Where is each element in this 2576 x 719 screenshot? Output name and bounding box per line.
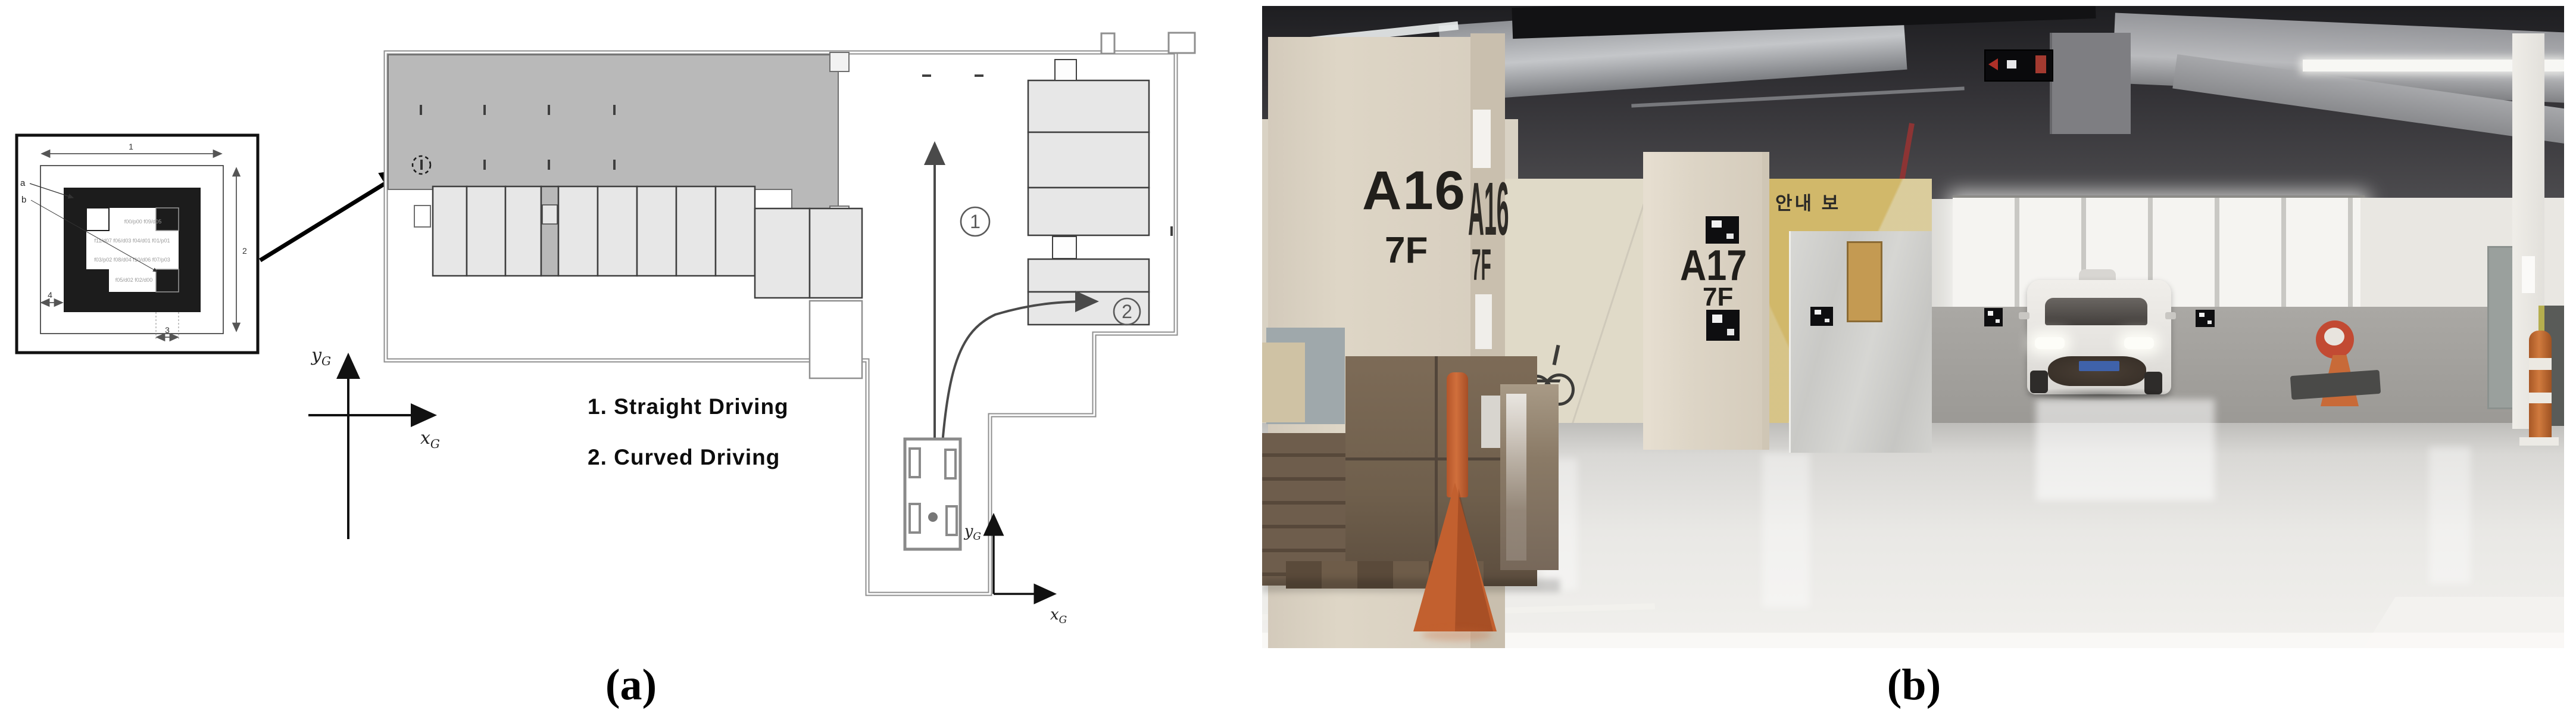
- led-white-dot: [2007, 60, 2016, 69]
- tick: [1170, 226, 1173, 236]
- tick: [922, 74, 931, 77]
- stall: [558, 186, 598, 276]
- bollard-orange: [2529, 331, 2552, 443]
- plan-vehicle: [905, 439, 960, 549]
- global-y-label: yG: [310, 345, 331, 368]
- stall: [755, 208, 810, 298]
- marker-code-row4: f05/d02 f02/d00: [115, 277, 153, 283]
- marker-corner-cell-bl: [86, 269, 109, 292]
- stall: [637, 186, 676, 276]
- fiducial-marker-diagram: f00/p00 f09/d05 f11/d07 f06/d03 f04/d01 …: [17, 135, 258, 353]
- vehicle-y-letter: y: [964, 522, 973, 540]
- global-axes: yG xG: [308, 345, 440, 539]
- marker-code-row1: f00/p00 f09/d05: [124, 219, 162, 225]
- stall: [716, 186, 755, 276]
- global-y-sub: G: [321, 354, 331, 368]
- floor-reflection-3: [2429, 447, 2471, 584]
- car-headlight-right: [2124, 337, 2154, 349]
- round-sign-disc: [2316, 320, 2354, 359]
- car-windshield: [2045, 298, 2147, 325]
- plan-left-tab: [414, 206, 430, 227]
- vehicle-y-sub: G: [973, 531, 981, 543]
- tick: [613, 105, 616, 115]
- fallen-cone-group: [2291, 316, 2386, 411]
- path1-badge-number: 1: [970, 211, 981, 232]
- dim-label-1: 1: [129, 142, 133, 151]
- stall: [1028, 259, 1149, 292]
- stall: [598, 186, 637, 276]
- stall: [1028, 132, 1149, 188]
- pillar-a16-side-paper: [1473, 110, 1491, 168]
- stall-pillar-square: [542, 205, 557, 224]
- car-shadow: [2022, 387, 2177, 401]
- pillar-a16-side-id-text: A16: [1468, 172, 1509, 247]
- vehicle-wheel-fr: [945, 450, 956, 478]
- global-y-letter: y: [310, 345, 322, 366]
- wall-seam-line: [1566, 185, 1651, 442]
- floor-reflection-2: [1762, 453, 1810, 608]
- duct-panel-gray: [2050, 33, 2131, 134]
- pillar-a17: A17 7F: [1643, 152, 1762, 450]
- floor-reflection-car: [2036, 399, 2215, 500]
- pillar-a16-floor-text: 7F: [1385, 232, 1428, 269]
- sign-disc-center: [2324, 328, 2344, 346]
- marker-corner-cell-tl: [86, 208, 109, 231]
- vehicle-wheel-fl: [910, 449, 920, 477]
- bollard-reflective-band2: [2529, 393, 2552, 403]
- stall: [810, 208, 862, 298]
- box-beige: [1262, 343, 1305, 422]
- stall: [1028, 188, 1149, 235]
- pillar-a17-marker-top: [1706, 216, 1739, 244]
- fiducial-marker-wall-right: [2196, 310, 2215, 327]
- box-stack-wrapped: [1500, 384, 1559, 570]
- led-parking-sign: [1984, 49, 2053, 82]
- global-x-letter: x: [420, 428, 430, 449]
- garage-photo: 안내 보 A16 7F A16 7F: [1262, 6, 2564, 648]
- stall-pillar-strip: [541, 186, 558, 276]
- car-headlight-left: [2035, 337, 2065, 349]
- dark-equipment: [2290, 370, 2381, 400]
- stall-pillar-square: [1053, 236, 1076, 259]
- korean-wall-sign: 안내 보: [1775, 194, 1841, 213]
- wrap-shine: [1506, 394, 1526, 561]
- car: [2027, 268, 2173, 411]
- tick: [548, 160, 550, 170]
- stall: [433, 186, 467, 276]
- tick: [613, 160, 616, 170]
- tick: [548, 105, 550, 115]
- pillar-a16-side-floor-text: 7F: [1472, 243, 1491, 287]
- floor-plan: 1 2 yG xG 1. Straight Driving 2. C: [386, 33, 1195, 626]
- stall-pillar-square: [1055, 60, 1076, 80]
- vehicle-center-dot: [928, 512, 938, 522]
- vehicle-x-label: xG: [1050, 606, 1067, 626]
- led-red-glyph: [2035, 55, 2046, 73]
- pillar-a17-floor-text: 7F: [1703, 284, 1733, 310]
- legend-curved: 2. Curved Driving: [588, 445, 780, 469]
- traffic-cone-large: [1411, 372, 1500, 634]
- bollard-base-mat: [2519, 437, 2559, 446]
- tick: [483, 105, 486, 115]
- dim-label-2: 2: [242, 246, 247, 256]
- panel-a-diagram: f00/p00 f09/d05 f11/d07 f06/d03 f04/d01 …: [0, 0, 1262, 719]
- plan-pillar-tab-top: [830, 52, 849, 71]
- marker-location-arrow: [260, 173, 402, 260]
- fire-hydrant-box: [1847, 241, 1882, 322]
- pillar-a16-id-text: A16: [1362, 163, 1466, 218]
- callout-label-a: a: [20, 178, 26, 188]
- lower-wall-gray-band: [1928, 307, 2564, 429]
- callout-label-b: b: [21, 195, 26, 205]
- marker-location-tick: [420, 160, 423, 170]
- legend-straight: 1. Straight Driving: [588, 394, 789, 419]
- tick: [975, 74, 983, 77]
- plan-top-tab-small: [1101, 33, 1114, 54]
- pillar-paper-sign: [2522, 256, 2535, 293]
- path2-badge-number: 2: [1122, 301, 1132, 322]
- pillar-a17-id-text: A17: [1680, 244, 1747, 287]
- vehicle-wheel-rr: [947, 506, 957, 535]
- led-red-arrow-icon: [1988, 58, 1998, 70]
- cone-stem: [1447, 372, 1468, 497]
- fiducial-marker-wall-left: [1984, 308, 2003, 326]
- car-license-plate: [2079, 361, 2119, 371]
- global-x-sub: G: [430, 437, 440, 451]
- tick: [483, 160, 486, 170]
- cone-body-shade: [1455, 488, 1493, 631]
- car-mirror-left: [2019, 312, 2029, 319]
- marker-corner-cell-br: [156, 269, 179, 292]
- dim-label-3: 3: [165, 325, 170, 335]
- stall: [505, 186, 541, 276]
- plan-top-right-tab: [1169, 33, 1195, 53]
- global-x-label: xG: [420, 428, 440, 451]
- dim-label-4: 4: [48, 290, 52, 300]
- stall: [467, 186, 505, 276]
- pillar-a17-marker-bottom: [1706, 310, 1740, 341]
- ceiling-pipe-thin: [1631, 86, 1965, 107]
- stall: [1028, 80, 1149, 132]
- tick: [420, 105, 422, 115]
- cone-floor-reflection: [1422, 629, 1492, 641]
- stall: [676, 186, 716, 276]
- bollard-reflective-band: [2529, 358, 2552, 370]
- pillar-a16-side-paper2: [1475, 294, 1492, 349]
- caption-a: (a): [586, 660, 676, 711]
- caption-b: (b): [1869, 660, 1959, 711]
- marble-pillar-marker: [1810, 307, 1833, 326]
- plan-stalls-right: [1028, 60, 1149, 325]
- vehicle-x-letter: x: [1050, 606, 1059, 624]
- vehicle-wheel-rl: [910, 504, 920, 533]
- plan-small-room: [810, 301, 862, 378]
- figure-root: f00/p00 f09/d05 f11/d07 f06/d03 f04/d01 …: [0, 0, 2576, 719]
- car-mirror-right: [2165, 312, 2176, 319]
- vehicle-x-sub: G: [1059, 614, 1067, 626]
